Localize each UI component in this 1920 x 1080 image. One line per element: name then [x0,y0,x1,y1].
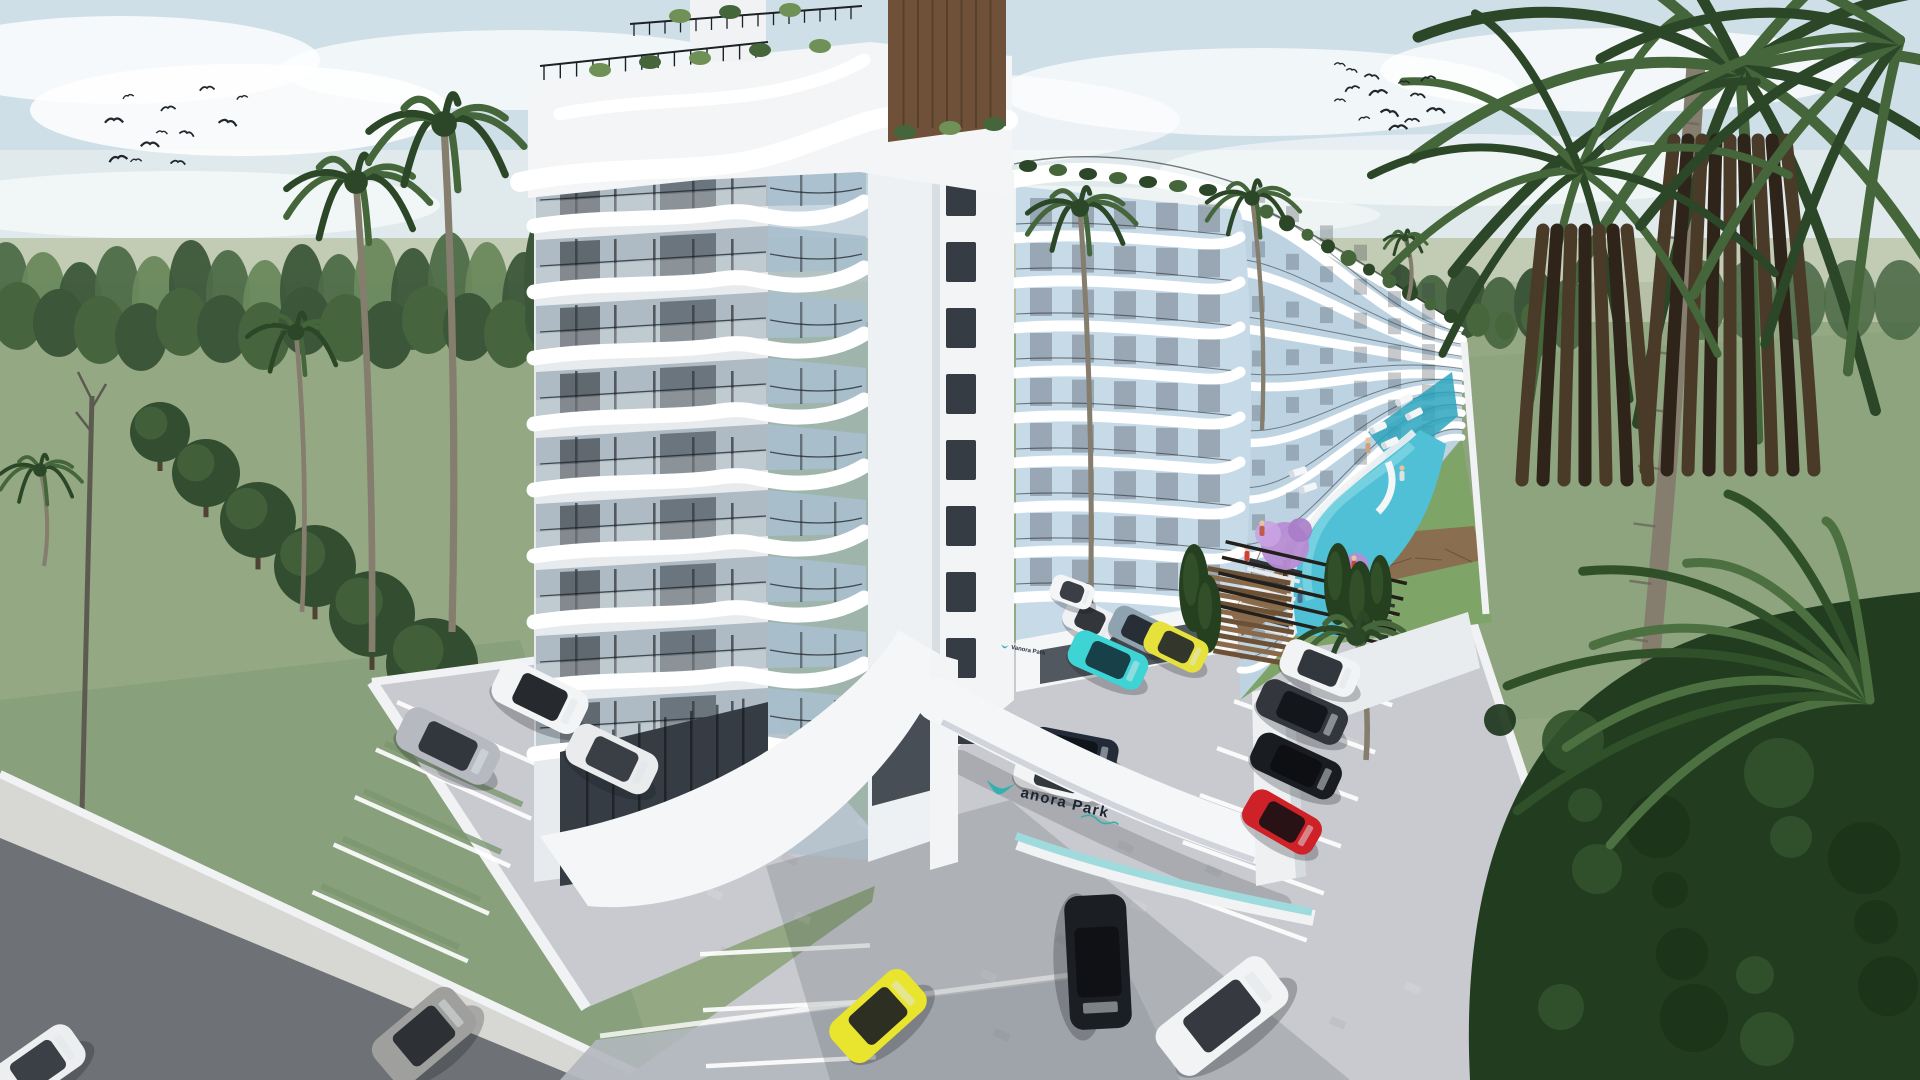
building-logo-swoosh-icon [1000,642,1010,650]
front-tower-floors [534,160,866,754]
scene-svg [0,0,1920,1080]
rendering-canvas: anora Park Vanora Park [0,0,1920,1080]
